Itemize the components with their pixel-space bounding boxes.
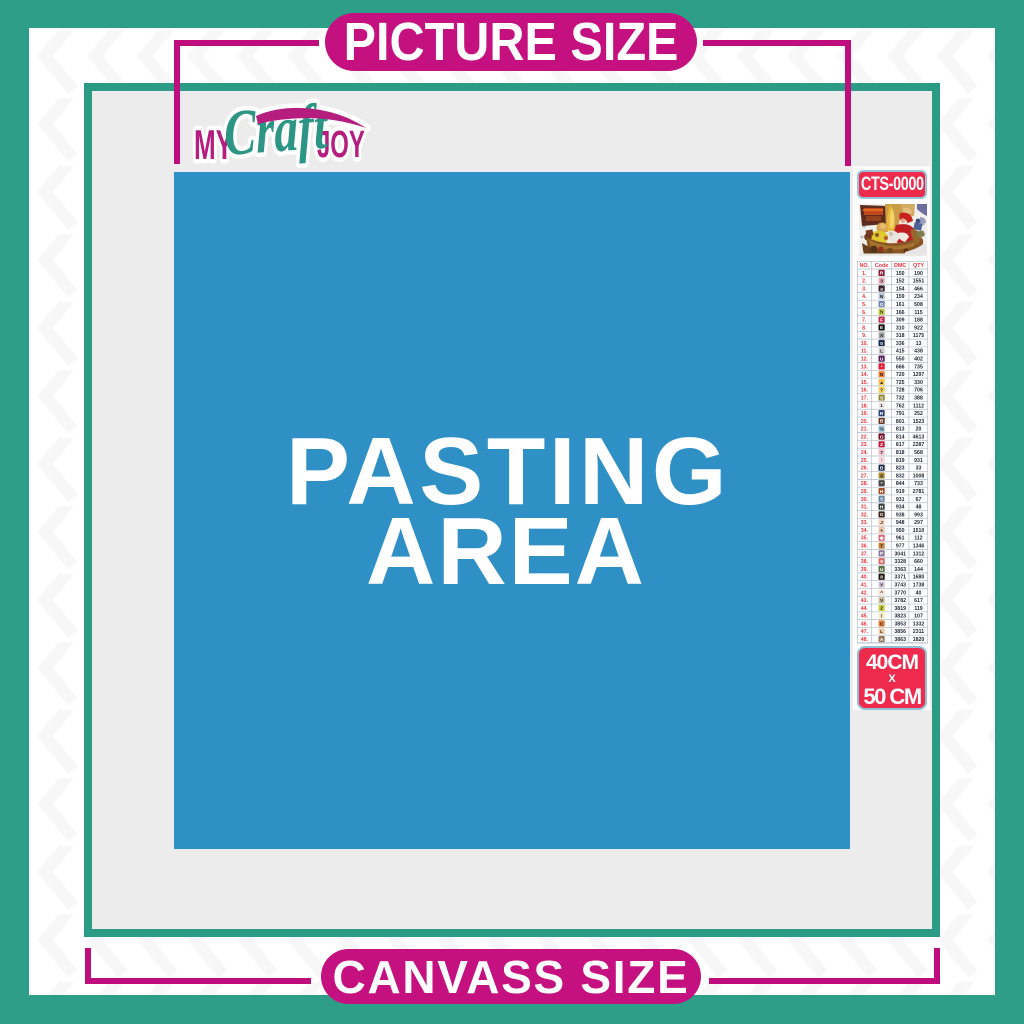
svg-text:938: 938 [896, 512, 905, 518]
svg-text:152: 152 [896, 279, 905, 285]
svg-text:T: T [880, 543, 883, 549]
svg-text:2287: 2287 [913, 442, 925, 448]
svg-text:1175: 1175 [913, 333, 924, 339]
svg-text:466: 466 [914, 286, 923, 292]
svg-text:Craft: Craft [223, 96, 330, 170]
svg-text:844: 844 [896, 481, 905, 487]
svg-text:330: 330 [914, 380, 923, 386]
svg-text:166: 166 [896, 310, 905, 316]
svg-text:DMC: DMC [894, 263, 906, 269]
svg-text:1008: 1008 [913, 473, 925, 479]
svg-text:15.: 15. [861, 380, 869, 386]
svg-text:1.: 1. [862, 271, 867, 277]
svg-text:150: 150 [896, 271, 905, 277]
svg-text:A: A [880, 637, 884, 643]
svg-text:QTY: QTY [913, 263, 924, 269]
svg-text:12.: 12. [861, 357, 869, 363]
svg-text:934: 934 [896, 505, 905, 511]
svg-text:159: 159 [896, 294, 905, 300]
svg-text:3856: 3856 [894, 629, 906, 635]
svg-text:144: 144 [914, 567, 923, 573]
svg-text:823: 823 [896, 466, 905, 472]
svg-text:22.: 22. [861, 434, 869, 440]
svg-text:252: 252 [914, 411, 923, 417]
svg-text:2311: 2311 [913, 629, 924, 635]
svg-text:25.: 25. [861, 458, 869, 464]
svg-text:R: R [880, 411, 884, 417]
svg-text:188: 188 [914, 318, 923, 324]
svg-text:948: 948 [896, 520, 905, 526]
svg-text:33.: 33. [861, 520, 869, 526]
svg-text:B: B [880, 419, 884, 425]
svg-text:568: 568 [914, 450, 923, 456]
svg-text:1297: 1297 [913, 372, 925, 378]
svg-text:791: 791 [896, 411, 905, 417]
svg-text:AREA: AREA [366, 498, 646, 605]
svg-text:40: 40 [916, 590, 922, 596]
svg-text:17.: 17. [861, 395, 869, 401]
svg-text:20: 20 [916, 427, 922, 433]
svg-text:1680: 1680 [913, 575, 925, 581]
svg-text:819: 819 [896, 458, 905, 464]
svg-text:415: 415 [896, 349, 905, 355]
svg-text:34.: 34. [861, 528, 869, 534]
svg-text:21.: 21. [861, 427, 869, 433]
svg-text:+: + [880, 529, 883, 534]
svg-text:2781: 2781 [913, 489, 925, 495]
svg-text:37.: 37. [861, 551, 869, 557]
svg-text:41.: 41. [861, 582, 869, 588]
svg-text:19.: 19. [861, 411, 869, 417]
svg-text:N: N [880, 294, 884, 300]
svg-text:?: ? [880, 388, 883, 394]
svg-text:C: C [880, 621, 884, 627]
svg-text:2: 2 [880, 606, 883, 612]
svg-text:508: 508 [914, 302, 923, 308]
svg-text:27.: 27. [861, 473, 869, 479]
svg-text:318: 318 [896, 333, 905, 339]
svg-text:3770: 3770 [894, 590, 906, 596]
svg-text:3041: 3041 [894, 551, 906, 557]
svg-text:762: 762 [896, 403, 905, 409]
svg-text:4.: 4. [862, 294, 867, 300]
svg-text:1312: 1312 [913, 551, 925, 557]
svg-text:720: 720 [896, 372, 905, 378]
svg-text:115: 115 [914, 310, 922, 316]
svg-text:38.: 38. [861, 559, 869, 565]
svg-text:1: 1 [880, 403, 883, 409]
svg-text:43.: 43. [861, 598, 869, 604]
svg-text:%: % [879, 427, 884, 433]
svg-text:107: 107 [914, 614, 923, 620]
svg-text:◆: ◆ [879, 536, 884, 542]
svg-text:46.: 46. [861, 621, 869, 627]
svg-text:3863: 3863 [894, 637, 906, 643]
svg-text:U: U [880, 356, 884, 362]
svg-text:190: 190 [914, 271, 923, 277]
svg-text:310: 310 [896, 325, 905, 331]
svg-text:6.: 6. [862, 310, 867, 316]
svg-text:7.: 7. [862, 318, 867, 324]
svg-text:666: 666 [896, 364, 905, 370]
svg-text:617: 617 [914, 598, 923, 604]
svg-text:a: a [880, 287, 883, 292]
svg-text:931: 931 [896, 497, 905, 503]
svg-text:977: 977 [896, 544, 905, 550]
svg-text:297: 297 [914, 520, 923, 526]
svg-text:O: O [880, 434, 884, 440]
svg-text:3819: 3819 [894, 606, 906, 612]
svg-text:*: * [881, 481, 883, 487]
svg-text:F: F [880, 317, 883, 323]
svg-text:728: 728 [896, 388, 905, 394]
svg-text:35.: 35. [861, 536, 869, 542]
svg-text:725: 725 [896, 380, 905, 386]
svg-text:402: 402 [914, 357, 923, 363]
svg-text:G: G [880, 512, 884, 518]
svg-text:3.: 3. [862, 286, 867, 292]
svg-text:309: 309 [896, 318, 905, 324]
svg-text:U: U [880, 567, 884, 573]
svg-text:931: 931 [914, 458, 923, 464]
svg-text:7: 7 [880, 450, 883, 456]
svg-text:1523: 1523 [913, 419, 925, 425]
svg-text:N: N [880, 372, 884, 378]
svg-text:J: J [880, 520, 883, 526]
svg-text:961: 961 [896, 536, 905, 542]
svg-text:3853: 3853 [894, 621, 906, 627]
svg-text:39.: 39. [861, 567, 869, 573]
svg-text:3328: 3328 [894, 559, 906, 565]
svg-text:3782: 3782 [894, 598, 906, 604]
svg-text:H: H [880, 504, 884, 510]
svg-text:20.: 20. [861, 419, 869, 425]
svg-text:Code: Code [875, 263, 888, 269]
svg-text:1346: 1346 [913, 544, 925, 550]
svg-text:36.: 36. [861, 544, 869, 550]
svg-text:33: 33 [916, 466, 922, 472]
svg-text:813: 813 [896, 427, 905, 433]
svg-text:h: h [880, 310, 883, 316]
svg-text:733: 733 [914, 481, 923, 487]
svg-text:922: 922 [914, 325, 923, 331]
svg-text:3363: 3363 [894, 567, 906, 573]
svg-text:550: 550 [896, 357, 905, 363]
svg-text:▲: ▲ [879, 381, 884, 386]
svg-text:950: 950 [896, 528, 905, 534]
svg-text:Z: Z [880, 442, 883, 448]
svg-text:3: 3 [880, 278, 883, 284]
svg-text:801: 801 [896, 419, 905, 425]
svg-text:26.: 26. [861, 466, 869, 472]
svg-text:NO.: NO. [860, 263, 870, 269]
svg-text:11.: 11. [861, 349, 868, 355]
svg-text:817: 817 [896, 442, 905, 448]
svg-text:H: H [880, 489, 884, 495]
svg-text:119: 119 [914, 606, 922, 612]
svg-text:1510: 1510 [913, 528, 925, 534]
svg-text:9: 9 [880, 559, 883, 565]
svg-text:814: 814 [896, 434, 905, 440]
svg-text:13: 13 [916, 341, 922, 347]
svg-text:1112: 1112 [913, 403, 924, 409]
svg-text:2.: 2. [862, 279, 867, 285]
svg-text:660: 660 [914, 559, 923, 565]
svg-text:29.: 29. [861, 489, 869, 495]
svg-text:8: 8 [880, 575, 883, 581]
svg-text:706: 706 [914, 388, 923, 394]
svg-text:G: G [880, 302, 884, 308]
svg-text:919: 919 [896, 489, 905, 495]
svg-text:44.: 44. [861, 606, 869, 612]
svg-text:24.: 24. [861, 450, 869, 456]
svg-text:112: 112 [914, 536, 922, 542]
svg-text:14.: 14. [861, 372, 869, 378]
svg-text:9.: 9. [862, 333, 867, 339]
svg-text:154: 154 [896, 286, 905, 292]
svg-text:3743: 3743 [894, 582, 906, 588]
svg-text:48.: 48. [861, 637, 869, 643]
svg-text:993: 993 [914, 512, 923, 518]
svg-text:B: B [880, 465, 884, 471]
svg-text:28.: 28. [861, 481, 869, 487]
svg-text:40.: 40. [861, 575, 869, 581]
svg-text:3371: 3371 [894, 575, 906, 581]
svg-text:↑: ↑ [880, 459, 882, 464]
svg-text:47.: 47. [861, 629, 869, 635]
svg-text:0: 0 [880, 341, 883, 347]
svg-text:1738: 1738 [913, 582, 925, 588]
svg-text:23.: 23. [861, 442, 869, 448]
svg-text:234: 234 [914, 294, 923, 300]
svg-text:818: 818 [896, 450, 905, 456]
svg-text:438: 438 [914, 349, 923, 355]
svg-text:3823: 3823 [894, 614, 906, 620]
svg-text:^: ^ [880, 590, 883, 596]
svg-text:336: 336 [896, 341, 905, 347]
svg-text:32.: 32. [861, 512, 869, 518]
svg-text:1551: 1551 [913, 279, 925, 285]
svg-text:161: 161 [896, 302, 905, 308]
svg-text:1820: 1820 [913, 637, 925, 643]
svg-text:832: 832 [896, 473, 905, 479]
svg-text:42.: 42. [861, 590, 869, 596]
svg-text:8.: 8. [862, 325, 867, 331]
svg-text:30.: 30. [861, 497, 869, 503]
svg-text:10.: 10. [861, 341, 869, 347]
svg-text:5.: 5. [862, 302, 867, 308]
svg-text:4613: 4613 [913, 434, 925, 440]
svg-text:L: L [880, 349, 883, 355]
svg-text:18.: 18. [861, 403, 869, 409]
svg-text:67: 67 [916, 497, 922, 503]
svg-text:R: R [880, 271, 884, 277]
svg-text:31.: 31. [861, 505, 869, 511]
svg-text:13.: 13. [861, 364, 869, 370]
svg-text:16.: 16. [861, 388, 869, 394]
svg-text:L: L [880, 629, 883, 635]
svg-text:732: 732 [896, 395, 905, 401]
svg-text:388: 388 [914, 395, 923, 401]
svg-text:45.: 45. [861, 614, 869, 620]
svg-text:1332: 1332 [913, 621, 925, 627]
svg-text:8: 8 [880, 473, 883, 479]
svg-text:48: 48 [916, 505, 922, 511]
svg-text:735: 735 [914, 364, 923, 370]
